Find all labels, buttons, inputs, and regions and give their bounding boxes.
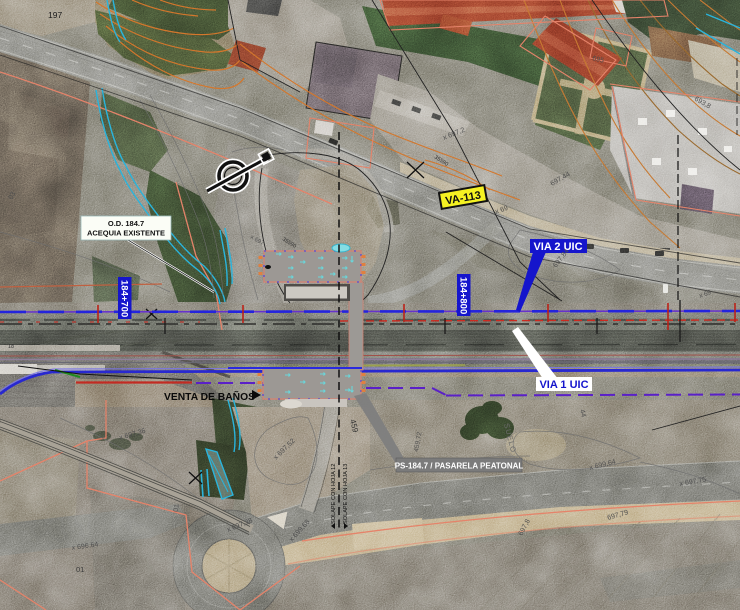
- svg-text:VIA 1 UIC: VIA 1 UIC: [539, 379, 588, 391]
- svg-text:184+700: 184+700: [118, 280, 129, 317]
- svg-text:VENTA DE BAÑOS: VENTA DE BAÑOS: [164, 390, 255, 403]
- svg-text:18: 18: [8, 344, 14, 350]
- svg-text:197: 197: [48, 10, 62, 20]
- svg-text:O.D. 184.7: O.D. 184.7: [108, 219, 144, 228]
- svg-text:PS-184.7 / PASARELA PEATONAL: PS-184.7 / PASARELA PEATONAL: [395, 462, 524, 471]
- svg-text:01: 01: [173, 504, 181, 512]
- svg-text:SOLAPE CON HOJA 13: SOLAPE CON HOJA 13: [343, 464, 349, 524]
- svg-text:VIA 2 UIC: VIA 2 UIC: [533, 241, 582, 253]
- svg-text:ACEQUIA EXISTENTE: ACEQUIA EXISTENTE: [87, 229, 165, 238]
- svg-text:01: 01: [76, 565, 84, 574]
- svg-text:184+800: 184+800: [457, 277, 468, 314]
- svg-text:SOLAPE CON HOJA 12: SOLAPE CON HOJA 12: [331, 464, 337, 524]
